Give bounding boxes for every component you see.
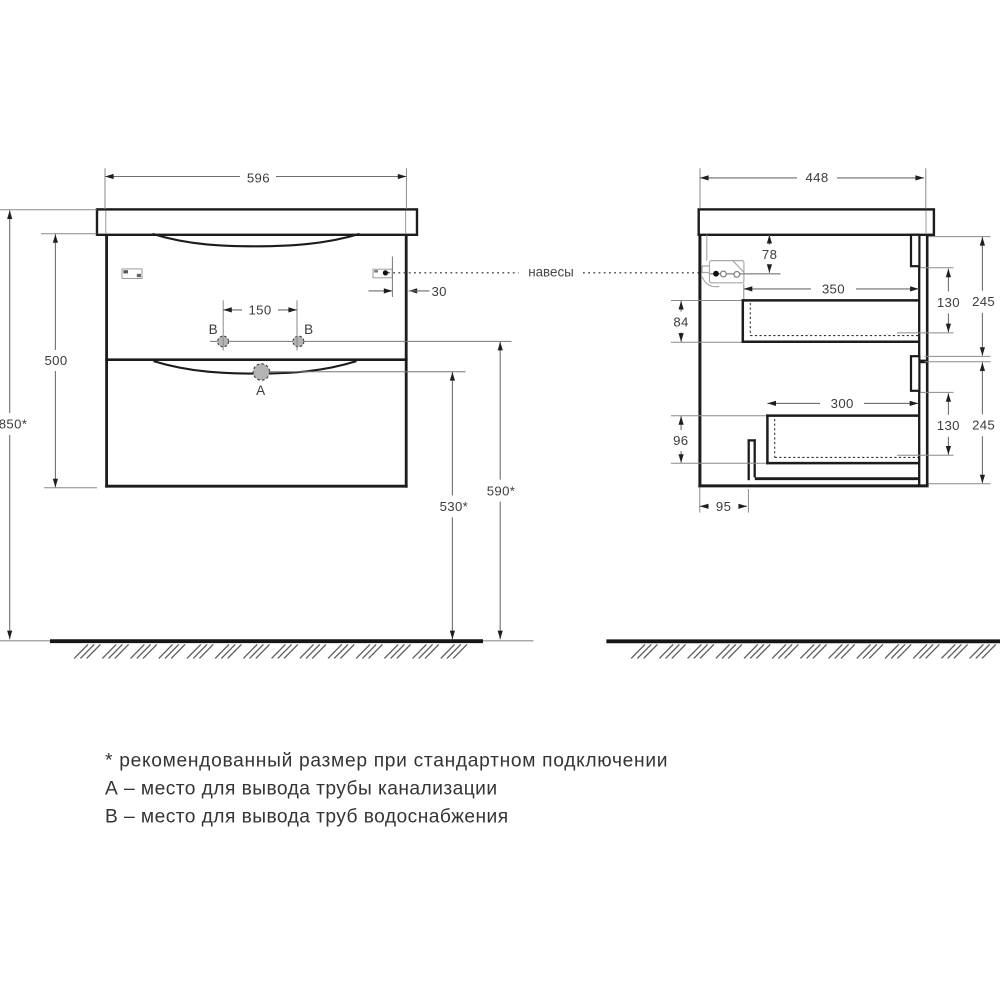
svg-text:95: 95: [716, 499, 731, 514]
svg-text:850*: 850*: [0, 417, 27, 432]
svg-text:596: 596: [247, 171, 270, 186]
svg-text:30: 30: [432, 284, 447, 299]
svg-text:150: 150: [248, 303, 271, 318]
svg-text:448: 448: [805, 170, 828, 185]
svg-text:300: 300: [831, 396, 854, 411]
svg-text:245: 245: [972, 294, 995, 309]
svg-text:В – место для вывода труб водо: В – место для вывода труб водоснабжения: [105, 807, 509, 828]
svg-text:78: 78: [762, 247, 777, 262]
svg-text:навесы: навесы: [528, 264, 574, 279]
svg-text:590*: 590*: [487, 483, 516, 498]
svg-text:530*: 530*: [440, 499, 469, 514]
svg-text:96: 96: [673, 433, 688, 448]
svg-text:500: 500: [44, 353, 67, 368]
svg-text:130: 130: [937, 418, 960, 433]
svg-text:350: 350: [822, 282, 845, 297]
svg-text:84: 84: [673, 315, 688, 330]
svg-text:B: B: [209, 322, 218, 337]
svg-text:130: 130: [937, 295, 960, 310]
svg-text:B: B: [304, 322, 313, 337]
svg-text:245: 245: [972, 418, 995, 433]
svg-text:* рекомендованный размер при с: * рекомендованный размер при стандартном…: [105, 751, 668, 772]
svg-text:А – место для вывода трубы кан: А – место для вывода трубы канализации: [105, 779, 498, 800]
svg-text:A: A: [256, 383, 265, 398]
